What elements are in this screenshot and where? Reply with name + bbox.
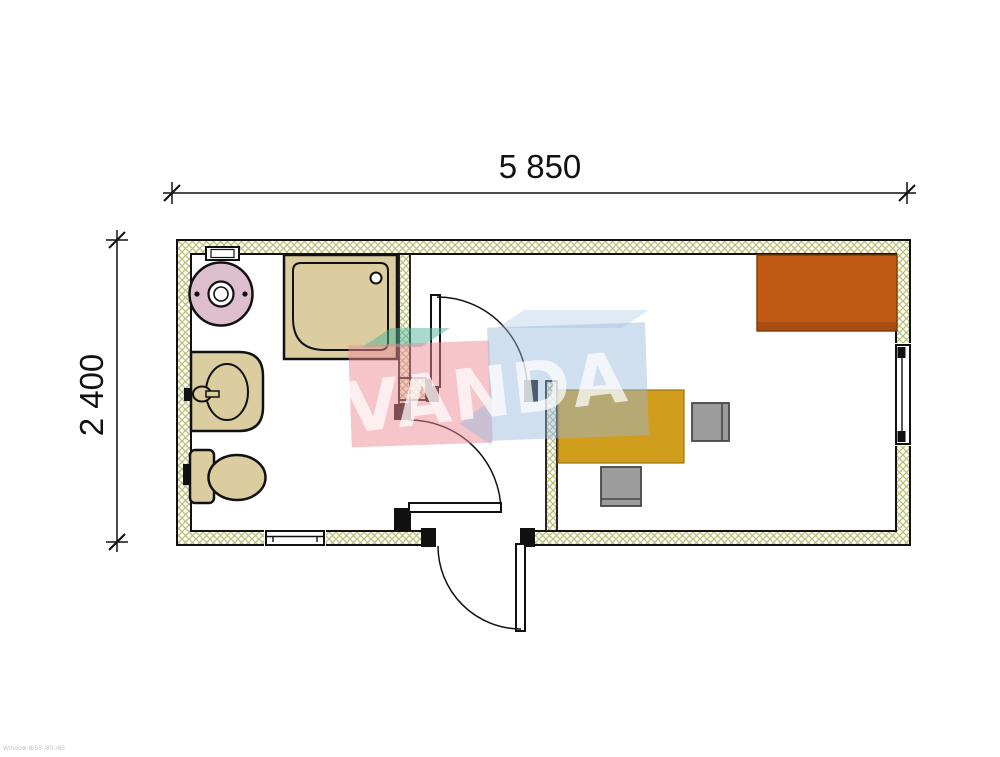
chair-right-seat (692, 403, 729, 441)
entrance-door-left-jamb (421, 528, 436, 547)
floorplan-page: 5 850 2 400 (0, 0, 1000, 757)
chair-right (692, 403, 729, 441)
entrance-door-opening (436, 528, 520, 547)
right-window-block-bottom (898, 431, 906, 442)
toilet-bowl (209, 455, 266, 500)
entrance-door-swing-arc (438, 546, 521, 629)
toilet (183, 450, 266, 503)
sink (184, 352, 263, 431)
chair-bottom (601, 467, 641, 506)
floorplan-drawing: 5 850 2 400 (0, 0, 1000, 757)
sink-wall-valve (184, 388, 191, 401)
fineprint-text: Window 8/55 /85 /85 (3, 745, 65, 752)
cabinet-body (757, 255, 897, 322)
shower-drain (371, 273, 382, 284)
entrance-door-leaf (516, 544, 525, 631)
entrance-door (438, 544, 525, 631)
cabinet (757, 255, 897, 331)
chair-bottom-seat (601, 467, 641, 506)
top-dimension (163, 182, 916, 204)
water-heater (190, 247, 253, 326)
right-window (896, 345, 910, 444)
toilet-wall-valve (183, 464, 190, 485)
water-heater-bolt-right (242, 291, 247, 296)
vanda-watermark: VANDA (341, 310, 649, 450)
width-dimension-label: 5 850 (499, 148, 582, 185)
bottom-window (266, 531, 324, 545)
water-heater-bolt-left (194, 291, 199, 296)
height-dimension-label: 2 400 (73, 354, 110, 437)
water-heater-flange (209, 282, 234, 307)
sink-faucet-spout (206, 391, 219, 397)
bathroom-door-leaf (409, 503, 501, 512)
right-window-block-top (898, 347, 906, 358)
cabinet-plinth (757, 322, 897, 331)
